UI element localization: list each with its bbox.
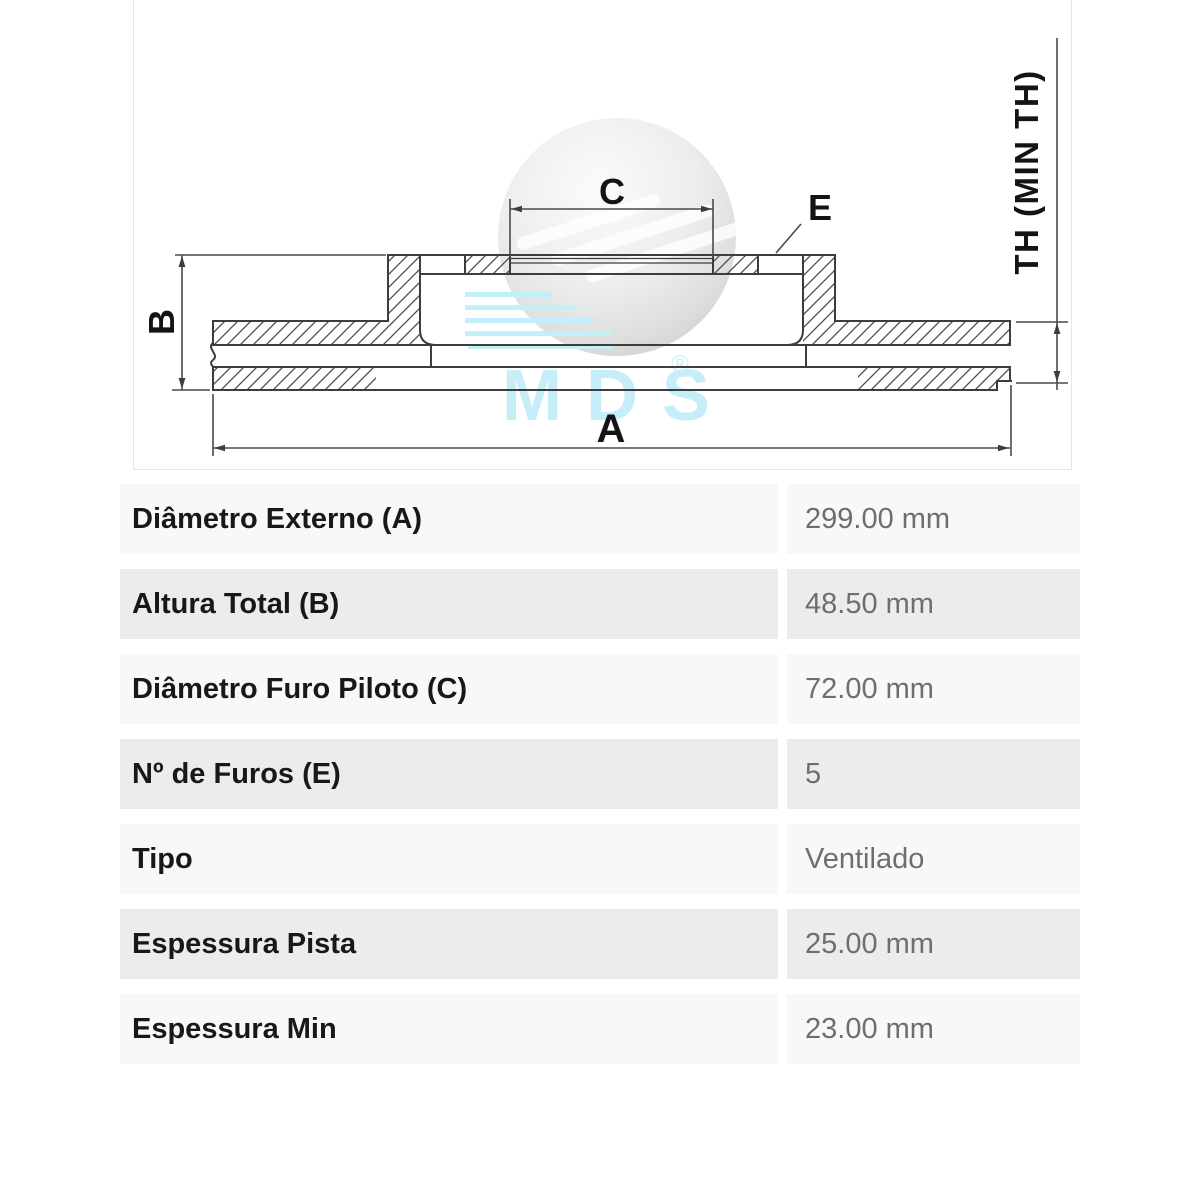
spec-value: 23.00 mm bbox=[787, 994, 1080, 1064]
dim-label-th: TH (MIN TH) bbox=[1008, 69, 1045, 274]
dim-label-c: C bbox=[599, 171, 625, 212]
spec-value: 299.00 mm bbox=[787, 484, 1080, 554]
spec-label: Altura Total (B) bbox=[120, 569, 778, 639]
spec-row: Diâmetro Externo (A) 299.00 mm bbox=[120, 484, 1080, 554]
outer-edge-break-line bbox=[211, 343, 215, 367]
spec-value: 72.00 mm bbox=[787, 654, 1080, 724]
spec-row: Tipo Ventilado bbox=[120, 824, 1080, 894]
dim-e-leader-line bbox=[776, 224, 801, 253]
spec-row: Nº de Furos (E) 5 bbox=[120, 739, 1080, 809]
spec-label: Espessura Min bbox=[120, 994, 778, 1064]
spec-label: Nº de Furos (E) bbox=[120, 739, 778, 809]
brake-disc-technical-drawing: MDS ® A B C bbox=[0, 0, 1200, 470]
spec-row: Espessura Pista 25.00 mm bbox=[120, 909, 1080, 979]
spec-label: Diâmetro Furo Piloto (C) bbox=[120, 654, 778, 724]
spec-table: Diâmetro Externo (A) 299.00 mm Altura To… bbox=[120, 484, 1080, 1064]
dim-label-a: A bbox=[597, 407, 626, 451]
spec-value: 48.50 mm bbox=[787, 569, 1080, 639]
spec-value: Ventilado bbox=[787, 824, 1080, 894]
dim-label-e: E bbox=[808, 187, 832, 228]
spec-label: Diâmetro Externo (A) bbox=[120, 484, 778, 554]
mds-watermark: MDS ® bbox=[465, 118, 767, 436]
spec-label: Tipo bbox=[120, 824, 778, 894]
spec-row: Diâmetro Furo Piloto (C) 72.00 mm bbox=[120, 654, 1080, 724]
dim-label-b: B bbox=[141, 309, 182, 335]
spec-label: Espessura Pista bbox=[120, 909, 778, 979]
page: { "diagram": { "dim_a": "A", "dim_b": "B… bbox=[0, 0, 1200, 1200]
watermark-registered-mark: ® bbox=[671, 351, 689, 378]
spec-row: Altura Total (B) 48.50 mm bbox=[120, 569, 1080, 639]
spec-value: 25.00 mm bbox=[787, 909, 1080, 979]
spec-row: Espessura Min 23.00 mm bbox=[120, 994, 1080, 1064]
spec-value: 5 bbox=[787, 739, 1080, 809]
